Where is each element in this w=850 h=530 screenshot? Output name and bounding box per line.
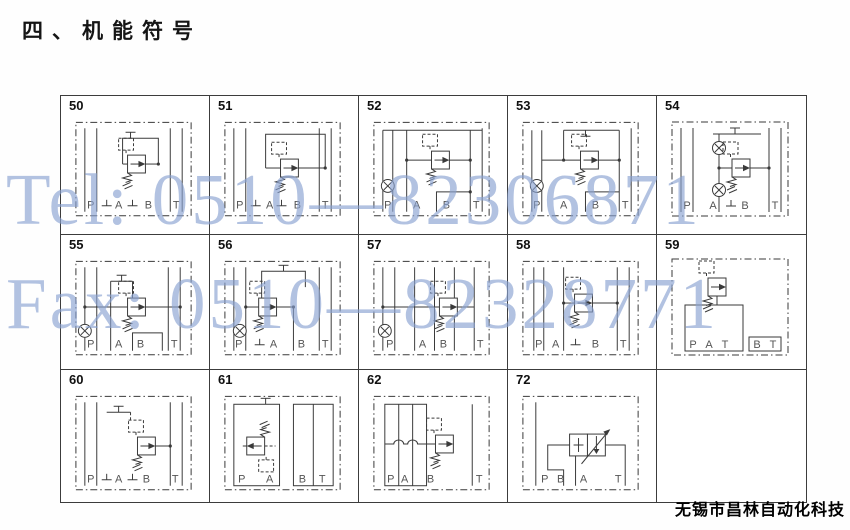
plug-icon	[114, 406, 124, 412]
port-label: P	[384, 200, 391, 212]
port-label: P	[535, 339, 542, 351]
cell-number: 55	[69, 237, 83, 252]
hydraulic-schematic-56: P A B T	[210, 253, 358, 367]
gauge-icon	[713, 184, 726, 197]
port-label: P	[683, 200, 690, 212]
port-label: A	[266, 473, 274, 485]
footer-company-name: 无锡市昌林自动化科技	[675, 496, 845, 520]
port-label: A	[552, 339, 560, 351]
plug-icon	[126, 132, 136, 138]
plug-icon	[730, 128, 740, 134]
symbol-grid: 50 P A B T 51	[60, 95, 807, 503]
port-label: T	[622, 200, 629, 212]
port-label: P	[541, 473, 548, 485]
empty-cell	[657, 370, 806, 502]
relief-valve-icon	[572, 134, 599, 185]
cell-number: 60	[69, 372, 83, 387]
port-label: P	[238, 473, 245, 485]
port-label: P	[387, 473, 394, 485]
port-label: A	[266, 200, 274, 212]
port-label: P	[87, 200, 94, 212]
gauge-icon	[233, 325, 246, 338]
port-label: B	[299, 473, 306, 485]
port-label: B	[137, 339, 144, 351]
port-label: A	[419, 339, 427, 351]
cell-number: 54	[665, 98, 679, 113]
port-label: P	[87, 339, 94, 351]
hydraulic-schematic-57: P A B T	[359, 253, 507, 367]
port-label: P	[235, 339, 242, 351]
gauge-icon	[381, 179, 394, 192]
port-label: B	[592, 200, 599, 212]
cell-number: 72	[516, 372, 530, 387]
port-label: T	[171, 339, 178, 351]
cell-number: 51	[218, 98, 232, 113]
symbol-cell-58: 58 P A B T	[508, 235, 657, 369]
port-label: B	[440, 339, 447, 351]
symbol-cell-60: 60 P A B T	[61, 370, 210, 502]
port-label: T	[473, 200, 480, 212]
symbol-cell-50: 50 P A B T	[61, 96, 210, 235]
port-label: B	[741, 200, 748, 212]
symbol-cell-59: 59 P A T B T	[657, 235, 806, 369]
port-label: A	[401, 473, 409, 485]
gauge-icon	[713, 142, 726, 155]
plug-icon	[255, 339, 265, 345]
port-label: P	[533, 200, 540, 212]
port-label: B	[294, 200, 301, 212]
port-label: P	[386, 339, 393, 351]
hydraulic-schematic-72: P B A T	[508, 388, 656, 502]
symbol-cell-62: 62 P A B T	[359, 370, 508, 502]
plug-icon	[726, 200, 736, 206]
hydraulic-schematic-54: P A B T	[657, 114, 806, 228]
plug-icon	[102, 473, 112, 479]
port-label: A	[115, 339, 123, 351]
symbol-cell-51: 51 P A B T	[210, 96, 359, 235]
port-label: T	[772, 200, 779, 212]
symbol-cell-53: 53 P A B T	[508, 96, 657, 235]
port-label: A	[115, 200, 123, 212]
port-label: T	[477, 339, 484, 351]
hydraulic-schematic-55: P A B T	[61, 253, 209, 367]
relief-valve-icon	[247, 421, 274, 472]
cell-number: 52	[367, 98, 381, 113]
hydraulic-schematic-53: P A B T	[508, 114, 656, 228]
hydraulic-schematic-50: P A B T	[61, 114, 209, 228]
hydraulic-schematic-51: P A B T	[210, 114, 358, 228]
port-label: B	[427, 473, 434, 485]
gauge-icon	[378, 325, 391, 338]
port-label: T	[322, 339, 329, 351]
port-label: P	[236, 200, 243, 212]
page-title: 四、机能符号	[22, 15, 202, 45]
port-label: B	[592, 339, 599, 351]
port-label: A	[709, 200, 717, 212]
port-label: T	[770, 339, 777, 351]
symbol-cell-54: 54 P A B T	[657, 96, 806, 235]
hydraulic-schematic-58: P A B T	[508, 253, 656, 367]
symbol-cell-57: 57 P A B T	[359, 235, 508, 369]
port-label: B	[443, 200, 450, 212]
port-label: T	[172, 473, 179, 485]
cell-number: 59	[665, 237, 679, 252]
port-label: A	[413, 200, 421, 212]
symbol-cell-55: 55 P A B T	[61, 235, 210, 369]
hydraulic-schematic-59: P A T B T	[657, 253, 806, 367]
plug-icon	[581, 130, 591, 136]
port-label: A	[705, 339, 713, 351]
port-label: T	[476, 473, 483, 485]
plug-icon	[261, 398, 271, 404]
port-label: A	[115, 473, 123, 485]
hydraulic-schematic-61: P A B T	[210, 388, 358, 502]
hydraulic-schematic-62: P A B T	[359, 388, 507, 502]
port-label: T	[322, 200, 329, 212]
hydraulic-schematic-52: P A B T	[359, 114, 507, 228]
plug-icon	[128, 200, 138, 206]
symbol-cell-61: 61 P A B T	[210, 370, 359, 502]
plug-icon	[128, 473, 138, 479]
plug-icon	[102, 200, 112, 206]
cell-number: 53	[516, 98, 530, 113]
plug-icon	[117, 276, 127, 282]
plug-icon	[277, 200, 287, 206]
port-label: A	[560, 200, 568, 212]
port-label: B	[753, 339, 760, 351]
cell-number: 57	[367, 237, 381, 252]
port-label: P	[87, 473, 94, 485]
symbol-cell-56: 56 P A B T	[210, 235, 359, 369]
symbol-cell-52: 52 P A B T	[359, 96, 508, 235]
port-label: A	[270, 339, 278, 351]
port-label: T	[615, 473, 622, 485]
plug-icon	[279, 266, 289, 272]
port-label: B	[557, 473, 564, 485]
relief-valve-icon	[423, 134, 450, 185]
port-label: B	[298, 339, 305, 351]
cell-number: 58	[516, 237, 530, 252]
port-label: T	[319, 473, 326, 485]
symbol-cell-72: 72 P B A T	[508, 370, 657, 502]
cell-number: 56	[218, 237, 232, 252]
relief-valve-icon	[699, 261, 726, 312]
port-label: T	[173, 200, 180, 212]
cell-number: 61	[218, 372, 232, 387]
relief-valve-icon	[129, 420, 156, 471]
cell-number: 50	[69, 98, 83, 113]
port-label: T	[722, 339, 729, 351]
plug-icon	[571, 339, 581, 345]
cell-number: 62	[367, 372, 381, 387]
port-label: A	[580, 473, 588, 485]
gauge-icon	[530, 179, 543, 192]
port-label: B	[143, 473, 150, 485]
port-label: B	[145, 200, 152, 212]
port-label: T	[620, 339, 627, 351]
plug-icon	[251, 200, 261, 206]
port-label: P	[689, 339, 696, 351]
gauge-icon	[78, 325, 91, 338]
hydraulic-schematic-60: P A B T	[61, 388, 209, 502]
